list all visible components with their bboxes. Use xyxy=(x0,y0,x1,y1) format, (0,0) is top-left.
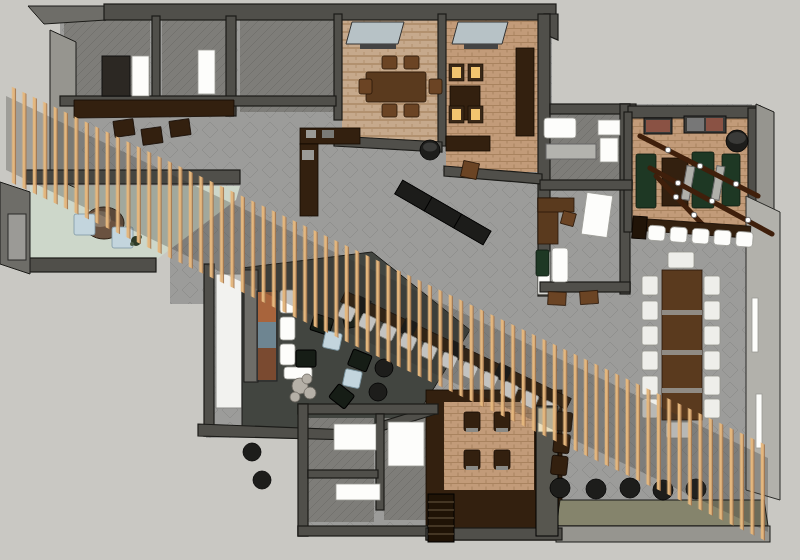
floor-pouf xyxy=(620,478,640,498)
communal-chair xyxy=(704,301,720,320)
communal-chair xyxy=(704,399,720,418)
outer-wall-south-face xyxy=(556,526,770,542)
picture-art xyxy=(706,118,723,131)
communal-chair xyxy=(642,276,658,295)
bar-stool xyxy=(692,228,710,244)
dining-chair xyxy=(404,56,419,69)
communal-chair xyxy=(642,351,658,370)
restroom-door xyxy=(388,422,424,466)
counter-item xyxy=(322,130,334,138)
wall-games-west xyxy=(624,112,632,232)
brown-chair xyxy=(550,455,568,476)
white-cabinet xyxy=(598,120,620,135)
dining-chair xyxy=(404,104,419,117)
wall-reception-south xyxy=(26,258,156,272)
lit-booth-seat xyxy=(449,64,464,81)
booth-table xyxy=(496,428,508,432)
beam-spotlight xyxy=(709,198,715,204)
stone-feature xyxy=(302,374,312,384)
lit-booth-seat xyxy=(449,106,464,123)
communal-chair xyxy=(642,301,658,320)
lightwell-floor xyxy=(216,274,242,408)
table-band xyxy=(662,388,702,393)
window-slit-2 xyxy=(756,394,762,448)
wall-a1-a2 xyxy=(152,16,160,100)
green-chair xyxy=(536,250,549,276)
dining-table xyxy=(366,72,426,102)
green-bench xyxy=(636,154,656,208)
communal-chair xyxy=(704,376,720,395)
skylight-window xyxy=(346,22,404,44)
bar-stool xyxy=(735,231,753,247)
stool xyxy=(580,290,599,304)
lounge-table xyxy=(342,369,362,389)
closet xyxy=(102,56,130,96)
white-meeting-table xyxy=(581,192,613,237)
wall-office-south xyxy=(540,282,630,292)
wall-bench xyxy=(280,344,295,365)
beam-spotlight xyxy=(675,180,681,186)
bar-stool xyxy=(648,225,666,241)
floor-pouf xyxy=(550,478,570,498)
communal-chair xyxy=(642,326,658,345)
stool xyxy=(548,292,567,306)
floor-pouf xyxy=(586,479,606,499)
wall-restroom-north xyxy=(298,404,438,414)
stone-feature xyxy=(290,392,300,402)
corridor-table xyxy=(169,119,191,138)
lit-booth-seat xyxy=(468,106,483,123)
wall-restroom-south xyxy=(298,526,438,536)
white-cabinet xyxy=(600,138,618,162)
door-room-a1 xyxy=(132,56,149,96)
lounge-armchair xyxy=(296,350,316,367)
plant-leaf xyxy=(130,242,134,246)
vestibule-door xyxy=(8,214,26,260)
counter-item xyxy=(306,130,316,138)
communal-table xyxy=(662,270,702,420)
mural-art xyxy=(258,322,276,348)
floor-pouf xyxy=(253,471,271,489)
wall-office-north xyxy=(540,180,632,190)
round-table-top xyxy=(423,143,437,152)
room-a2-shading xyxy=(162,20,226,98)
dining-chair xyxy=(359,79,372,94)
north-corridor-counter xyxy=(74,100,234,118)
stool xyxy=(461,161,480,180)
planter-shelf xyxy=(446,136,490,151)
white-bench xyxy=(544,118,576,138)
mural-art xyxy=(258,348,276,380)
floor-pouf xyxy=(369,383,387,401)
wall-bench xyxy=(280,317,295,340)
gray-bench xyxy=(546,144,596,159)
dining-chair xyxy=(382,104,397,117)
window-slit-1 xyxy=(752,298,758,352)
table-band xyxy=(662,310,702,315)
beam-spotlight xyxy=(665,147,671,153)
dining-chair xyxy=(382,56,397,69)
floorplan-canvas xyxy=(0,0,800,560)
skylight-window xyxy=(452,22,508,44)
bar-stool xyxy=(713,230,731,246)
skylight-frame xyxy=(464,44,498,49)
wall-cabinet xyxy=(516,48,534,136)
floor-pouf xyxy=(243,443,261,461)
table-band xyxy=(662,350,702,355)
communal-chair xyxy=(704,351,720,370)
booth-table xyxy=(496,466,508,470)
corridor-table xyxy=(113,119,135,138)
beam-spotlight xyxy=(745,217,751,223)
beam-spotlight xyxy=(697,163,703,169)
cylinder-top xyxy=(728,132,746,144)
wall-restroom-west xyxy=(298,404,308,536)
head-chair xyxy=(668,252,694,268)
bar-endcap xyxy=(632,216,648,239)
communal-chair xyxy=(704,276,720,295)
floorplan-render xyxy=(0,0,800,560)
office-desk-return xyxy=(538,198,574,212)
picture-art xyxy=(687,118,704,131)
booth-table xyxy=(466,428,478,432)
top-wall xyxy=(104,4,556,20)
white-sofa xyxy=(552,248,568,282)
bar-stool xyxy=(670,227,688,243)
booth-table xyxy=(466,466,478,470)
communal-chair xyxy=(704,326,720,345)
stone-feature xyxy=(304,387,316,399)
lit-booth-seat xyxy=(468,64,483,81)
dining-chair xyxy=(429,79,442,94)
desk-chair xyxy=(560,211,576,227)
restroom-door xyxy=(336,484,380,500)
corridor-table xyxy=(141,127,163,146)
picture-art xyxy=(646,120,670,132)
door-room-a2 xyxy=(198,50,215,94)
counter-item xyxy=(302,150,314,160)
restroom-door xyxy=(334,424,376,450)
beam-spotlight xyxy=(733,181,739,187)
wall-lounge-west xyxy=(204,264,214,436)
beam-spotlight xyxy=(691,212,697,218)
beam-spotlight xyxy=(673,194,679,200)
skylight-frame xyxy=(360,44,396,49)
wall-restroom-subdivider xyxy=(308,470,378,478)
